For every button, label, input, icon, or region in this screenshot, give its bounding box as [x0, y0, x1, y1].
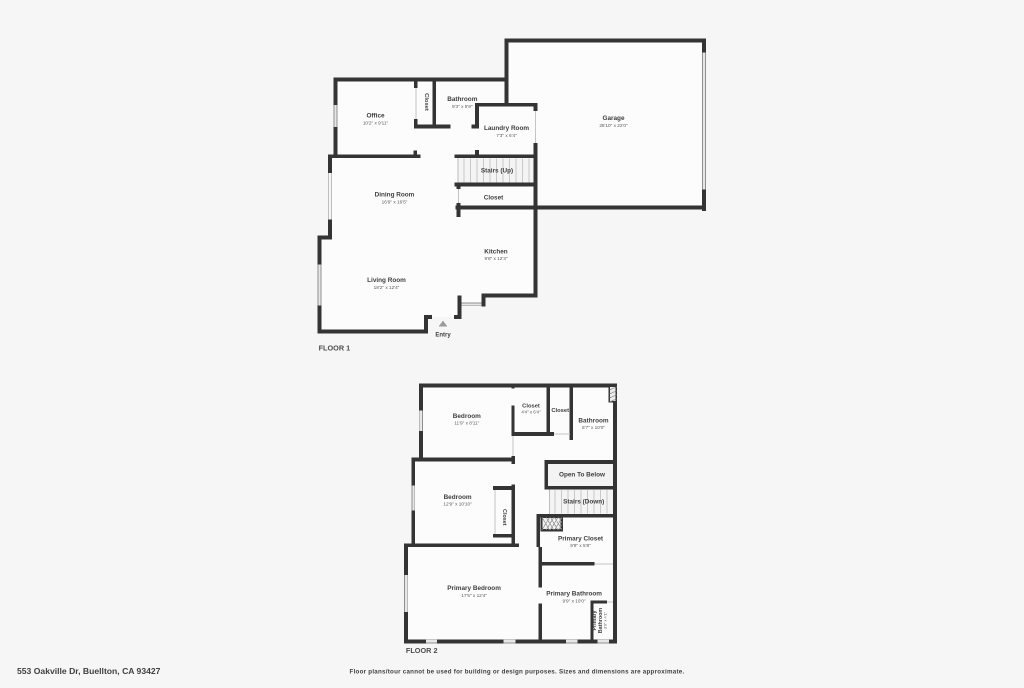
svg-text:7'3" x 6'4": 7'3" x 6'4" — [496, 133, 517, 138]
svg-text:3'0" x 4'1": 3'0" x 4'1" — [603, 611, 608, 629]
svg-text:11'9" x 8'11": 11'9" x 8'11" — [454, 421, 479, 426]
svg-text:FLOOR 2: FLOOR 2 — [406, 646, 438, 655]
svg-text:9'9" x 10'0": 9'9" x 10'0" — [563, 598, 586, 603]
svg-text:553 Oakville Dr, Buellton, CA: 553 Oakville Dr, Buellton, CA 93427 — [17, 666, 161, 676]
svg-text:FLOOR 1: FLOOR 1 — [319, 343, 351, 352]
svg-text:Primary Bedroom: Primary Bedroom — [447, 585, 501, 592]
svg-text:Primary Closet: Primary Closet — [558, 536, 604, 543]
svg-text:Bathroom: Bathroom — [447, 96, 477, 103]
svg-text:4'4" x 6'4": 4'4" x 6'4" — [521, 410, 541, 415]
svg-text:Bedroom: Bedroom — [453, 413, 481, 420]
svg-text:Entry: Entry — [435, 333, 451, 339]
svg-text:Laundry Room: Laundry Room — [484, 125, 529, 132]
svg-text:Garage: Garage — [602, 115, 624, 122]
svg-text:18'2" x 12'4": 18'2" x 12'4" — [374, 285, 400, 290]
svg-text:Closet: Closet — [551, 408, 569, 414]
svg-text:Bedroom: Bedroom — [444, 494, 472, 501]
svg-text:5'7" x 10'0": 5'7" x 10'0" — [582, 425, 605, 430]
svg-text:Bathroom: Bathroom — [578, 417, 608, 424]
svg-text:Living Room: Living Room — [367, 277, 406, 284]
svg-text:Dining Room: Dining Room — [375, 192, 415, 199]
svg-text:9'3" x 5'9": 9'3" x 5'9" — [452, 104, 473, 109]
svg-text:9'8" x 12'3": 9'8" x 12'3" — [484, 256, 507, 261]
svg-text:17'5" x 12'4": 17'5" x 12'4" — [461, 593, 487, 598]
svg-text:Closet: Closet — [484, 194, 504, 201]
svg-text:Stairs (Down): Stairs (Down) — [563, 498, 604, 505]
svg-text:Closet: Closet — [423, 93, 429, 111]
svg-text:Open To Below: Open To Below — [559, 471, 605, 478]
svg-text:Stairs (Up): Stairs (Up) — [481, 167, 513, 174]
svg-text:10'2" x 9'11": 10'2" x 9'11" — [363, 120, 389, 125]
svg-text:16'9" x 16'5": 16'9" x 16'5" — [382, 200, 408, 205]
svg-text:Primary Bathroom: Primary Bathroom — [546, 591, 602, 598]
svg-text:Kitchen: Kitchen — [484, 248, 508, 255]
svg-text:12'9" x 10'10": 12'9" x 10'10" — [443, 502, 472, 507]
svg-text:Floor plans/tour cannot be use: Floor plans/tour cannot be used for buil… — [350, 669, 685, 676]
svg-text:Closet: Closet — [501, 509, 507, 526]
svg-text:25'10" x 22'0": 25'10" x 22'0" — [599, 123, 628, 128]
svg-text:Office: Office — [366, 113, 385, 120]
svg-text:9'9" x 5'8": 9'9" x 5'8" — [570, 543, 591, 548]
